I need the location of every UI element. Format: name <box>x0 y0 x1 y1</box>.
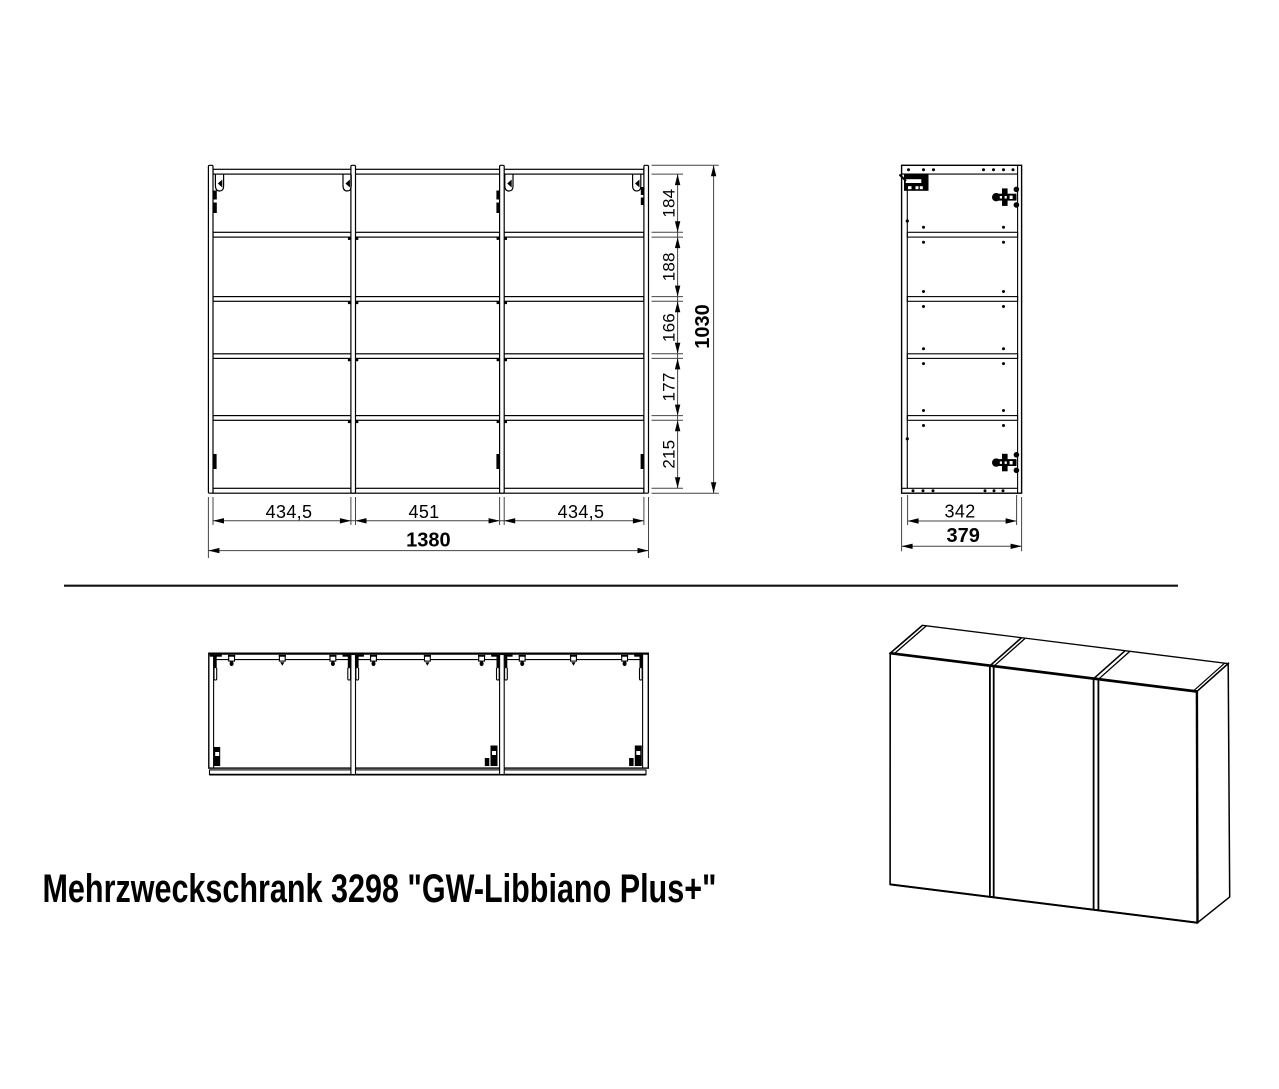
svg-text:188: 188 <box>660 252 679 281</box>
svg-text:Mehrzweckschrank 3298 "GW-Libb: Mehrzweckschrank 3298 "GW-Libbiano Plus+… <box>43 867 717 911</box>
svg-text:434,5: 434,5 <box>558 502 605 522</box>
svg-text:451: 451 <box>408 502 439 522</box>
svg-text:379: 379 <box>947 525 980 547</box>
svg-text:166: 166 <box>660 313 679 342</box>
svg-text:215: 215 <box>660 440 679 469</box>
svg-text:1380: 1380 <box>406 529 451 551</box>
svg-text:434,5: 434,5 <box>266 502 313 522</box>
svg-text:342: 342 <box>945 501 976 521</box>
svg-text:177: 177 <box>660 373 679 402</box>
svg-text:1030: 1030 <box>692 304 714 349</box>
svg-text:184: 184 <box>660 189 679 218</box>
